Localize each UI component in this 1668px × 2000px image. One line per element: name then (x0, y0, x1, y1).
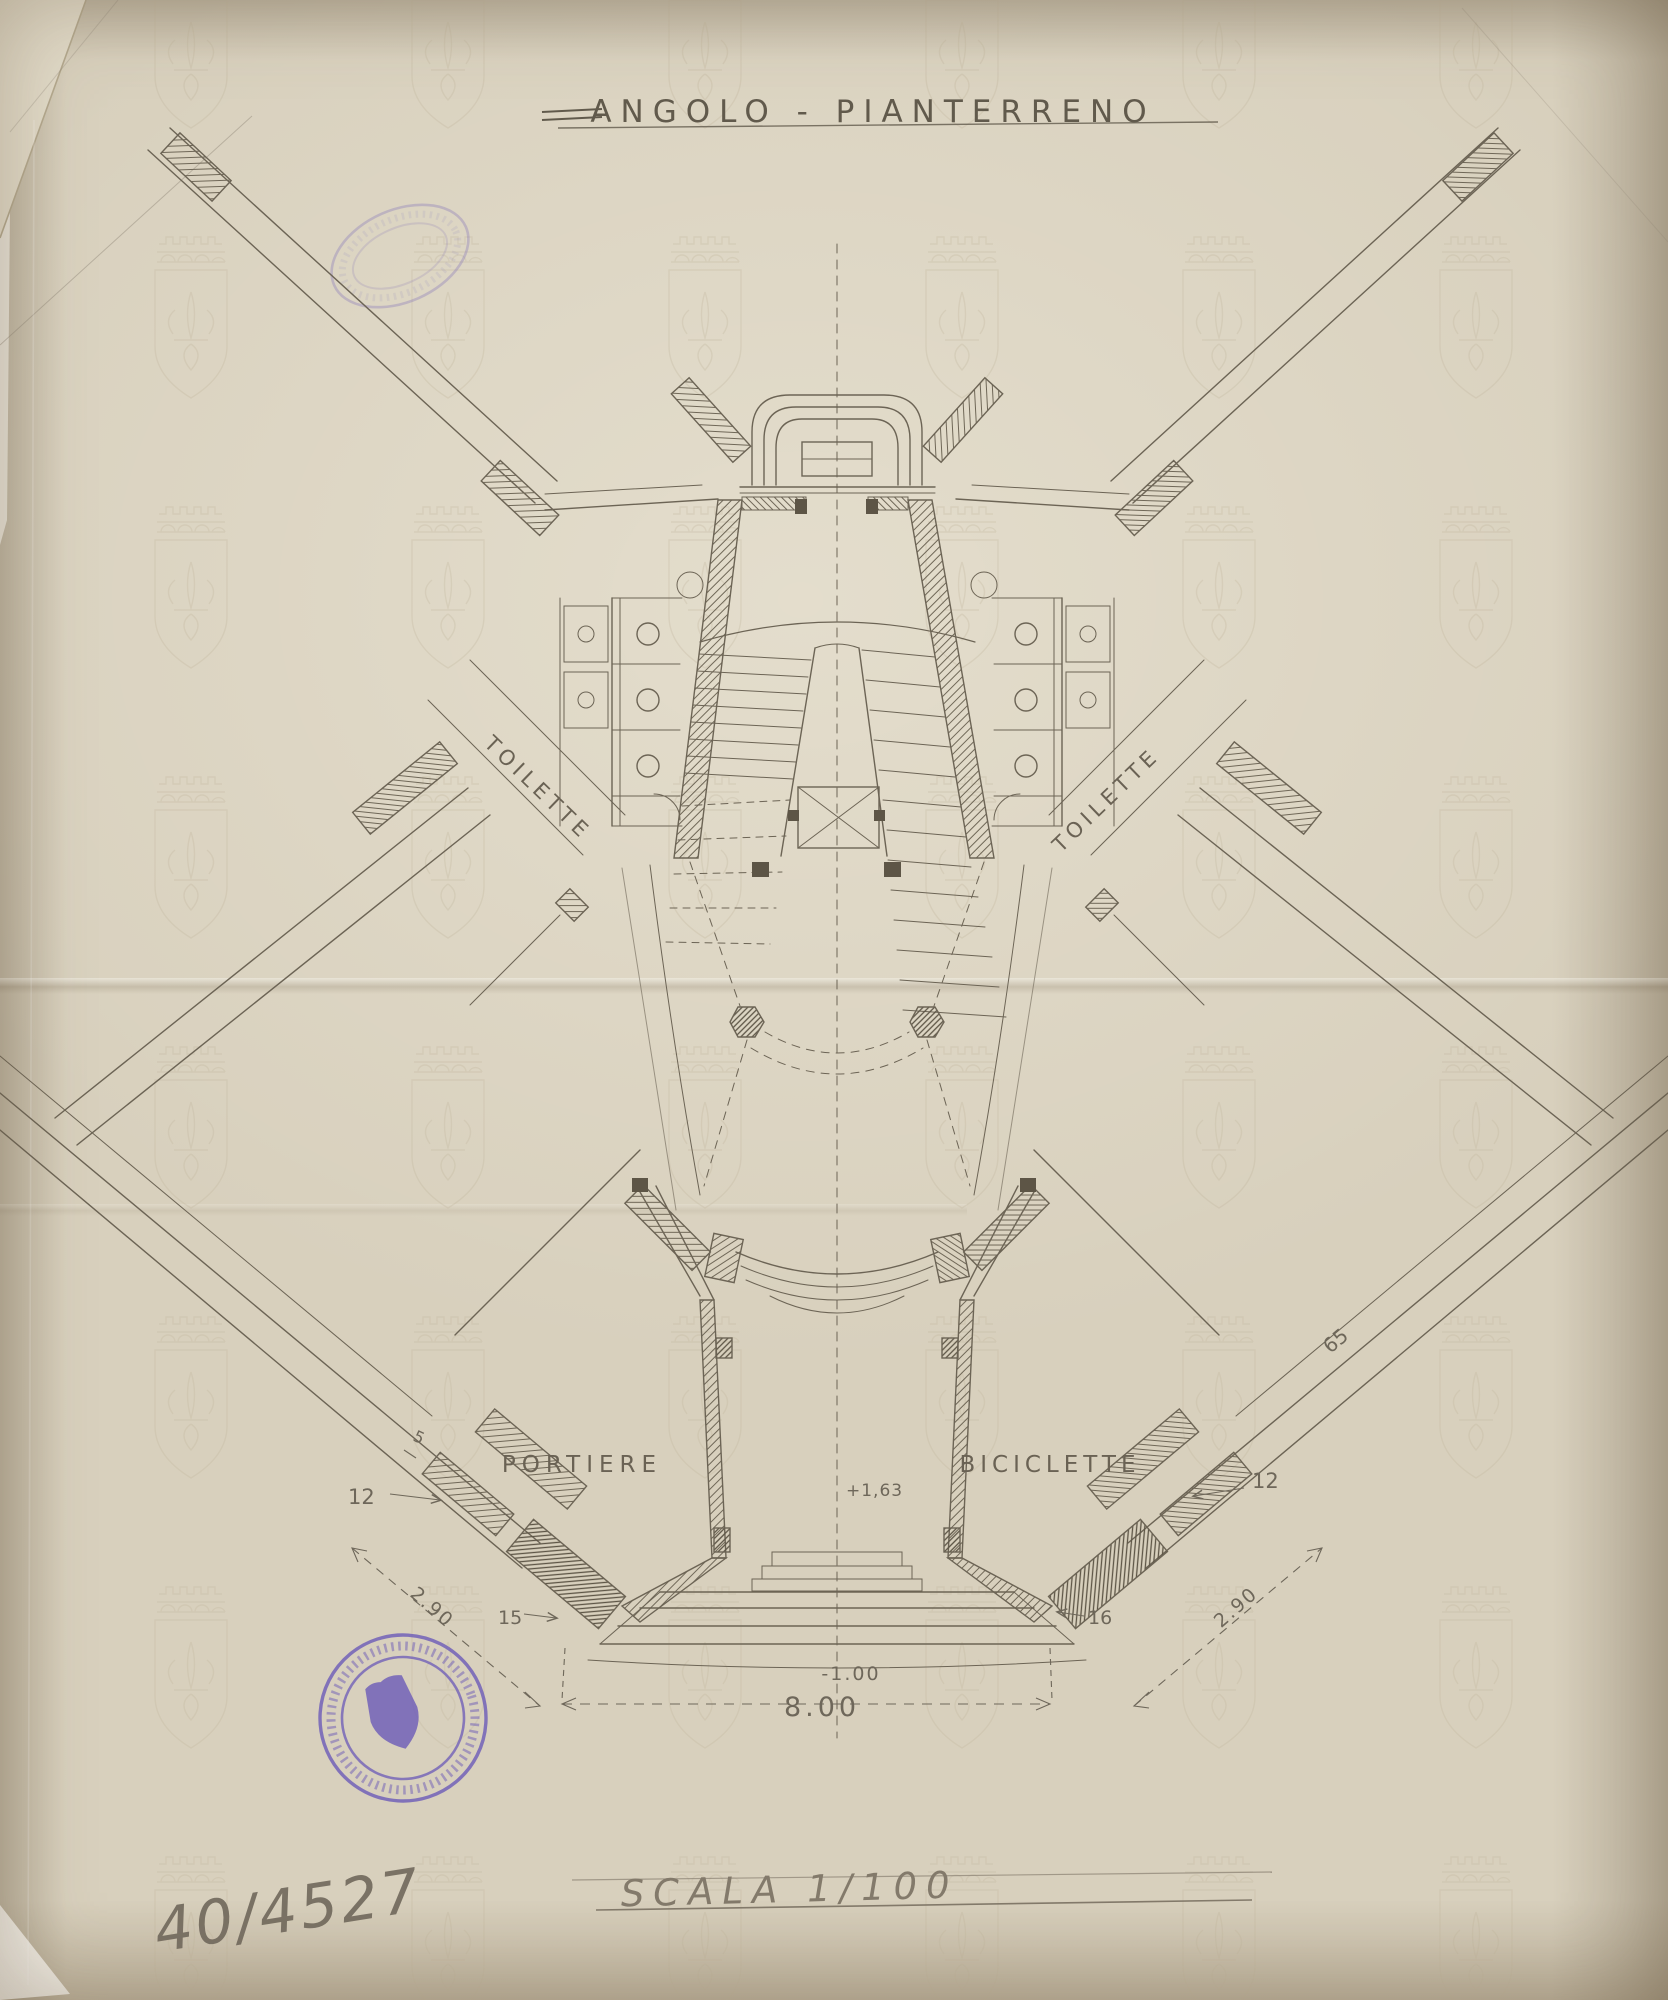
dim-12-right: 12 (1252, 1469, 1279, 1493)
drawing-title-block: ANGOLO - PIANTERRENO (542, 94, 1218, 130)
dim-total-width: 8.00 (784, 1692, 860, 1723)
dim-level-entry: +1,63 (846, 1481, 903, 1501)
room-label-portiere: PORTIERE (502, 1452, 662, 1478)
dim-16-right: 16 (1088, 1607, 1112, 1629)
room-label-biciclette: BICICLETTE (959, 1452, 1140, 1478)
dim-level-basement: -1.00 (821, 1663, 880, 1685)
scanned-drawing-sheet: ANGOLO - PIANTERRENO TOILETTE TOILETTE P… (0, 0, 1668, 2000)
dim-12-left: 12 (348, 1485, 375, 1509)
dim-15-left: 15 (498, 1607, 522, 1629)
plan-drawing: ANGOLO - PIANTERRENO TOILETTE TOILETTE P… (0, 0, 1668, 2000)
